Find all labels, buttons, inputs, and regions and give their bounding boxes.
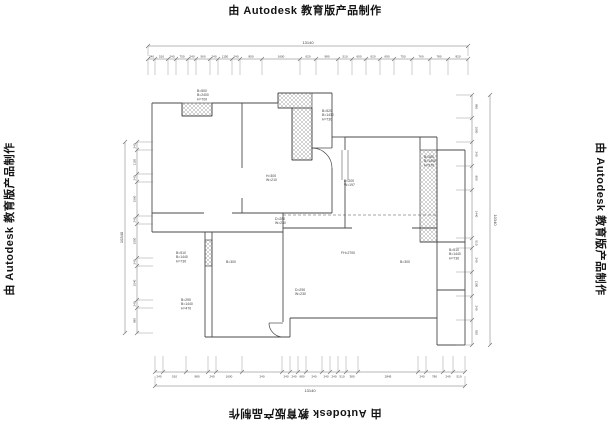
svg-text:1550: 1550 <box>133 237 137 244</box>
svg-text:780: 780 <box>432 375 437 379</box>
svg-text:510: 510 <box>172 375 177 379</box>
annotation-label: B=300 <box>226 260 236 264</box>
svg-text:560: 560 <box>200 55 205 59</box>
svg-text:1080: 1080 <box>475 127 479 134</box>
svg-text:820: 820 <box>475 330 479 335</box>
svg-text:240: 240 <box>311 375 316 379</box>
svg-text:1120: 1120 <box>133 158 137 165</box>
svg-text:510: 510 <box>342 55 347 59</box>
svg-text:240: 240 <box>189 55 194 59</box>
svg-text:240: 240 <box>283 375 288 379</box>
svg-text:750: 750 <box>179 55 184 59</box>
svg-text:510: 510 <box>159 55 164 59</box>
svg-text:240: 240 <box>169 55 174 59</box>
svg-text:680: 680 <box>299 375 304 379</box>
annotation-label: B=300 <box>400 260 410 264</box>
svg-text:980: 980 <box>324 55 329 59</box>
svg-text:850: 850 <box>248 55 253 59</box>
svg-text:1440: 1440 <box>475 211 479 218</box>
svg-text:240: 240 <box>156 375 161 379</box>
svg-text:240: 240 <box>475 151 479 156</box>
svg-text:780: 780 <box>436 55 441 59</box>
svg-text:240: 240 <box>133 143 137 148</box>
svg-text:240: 240 <box>133 301 137 306</box>
svg-text:1100: 1100 <box>475 281 479 288</box>
svg-text:240: 240 <box>209 375 214 379</box>
svg-text:13140: 13140 <box>302 40 314 45</box>
annotation-label: D=290W=230 <box>295 288 306 296</box>
svg-text:510: 510 <box>456 375 461 379</box>
svg-text:240: 240 <box>259 375 264 379</box>
svg-text:980: 980 <box>194 375 199 379</box>
annotation-label: H=300W=210 <box>266 174 277 182</box>
svg-text:240: 240 <box>475 305 479 310</box>
annotation-label: D=280W=230 <box>275 217 286 225</box>
svg-text:240: 240 <box>149 55 154 59</box>
svg-text:240: 240 <box>291 375 296 379</box>
svg-text:240: 240 <box>419 375 424 379</box>
svg-text:820: 820 <box>455 55 460 59</box>
annotation-label: FH=2700 <box>341 251 355 255</box>
svg-text:1600: 1600 <box>278 55 285 59</box>
svg-text:600: 600 <box>356 55 361 59</box>
svg-text:240: 240 <box>475 257 479 262</box>
annotation-label: B=290B=1440H=470 <box>181 298 193 310</box>
cad-drawing-canvas: 由 Autodesk 教育版产品制作 由 Autodesk 教育版产品制作 由 … <box>0 0 610 431</box>
svg-text:980: 980 <box>133 318 137 323</box>
svg-text:240: 240 <box>133 175 137 180</box>
svg-text:980: 980 <box>475 104 479 109</box>
annotation-label: B=510B=1440H=730 <box>449 248 461 260</box>
svg-text:1150: 1150 <box>222 55 229 59</box>
svg-text:750: 750 <box>400 55 405 59</box>
svg-text:240: 240 <box>323 375 328 379</box>
svg-text:690: 690 <box>384 55 389 59</box>
svg-text:240: 240 <box>445 375 450 379</box>
hatched-wall-group <box>182 93 437 266</box>
svg-text:2845: 2845 <box>385 375 392 379</box>
svg-text:1540: 1540 <box>133 279 137 286</box>
svg-text:380: 380 <box>349 375 354 379</box>
svg-text:240: 240 <box>211 55 216 59</box>
floor-plan-drawing: 2405102407502405602401150240850160062098… <box>0 0 610 431</box>
svg-text:760: 760 <box>418 55 423 59</box>
svg-text:620: 620 <box>305 55 310 59</box>
svg-text:13140: 13140 <box>304 388 316 393</box>
svg-text:1560: 1560 <box>133 195 137 202</box>
svg-text:240: 240 <box>331 375 336 379</box>
svg-text:240: 240 <box>133 217 137 222</box>
annotation-label: B=510B=1440H=730 <box>176 251 188 263</box>
svg-text:1600: 1600 <box>226 375 233 379</box>
svg-text:620: 620 <box>370 55 375 59</box>
annotation-label: B=500B=2400H=700 <box>197 89 209 101</box>
svg-text:10340: 10340 <box>119 231 124 243</box>
annotation-label: D=200W=197 <box>344 179 355 187</box>
door-swing-group <box>269 148 332 337</box>
annotation-label-group: B=500B=2400H=700B=520B=1430H=730B=280B=1… <box>176 89 461 310</box>
svg-text:510: 510 <box>339 375 344 379</box>
svg-text:240: 240 <box>233 55 238 59</box>
svg-text:980: 980 <box>475 175 479 180</box>
svg-text:10340: 10340 <box>493 214 498 226</box>
svg-text:240: 240 <box>133 259 137 264</box>
svg-text:510: 510 <box>475 240 479 245</box>
